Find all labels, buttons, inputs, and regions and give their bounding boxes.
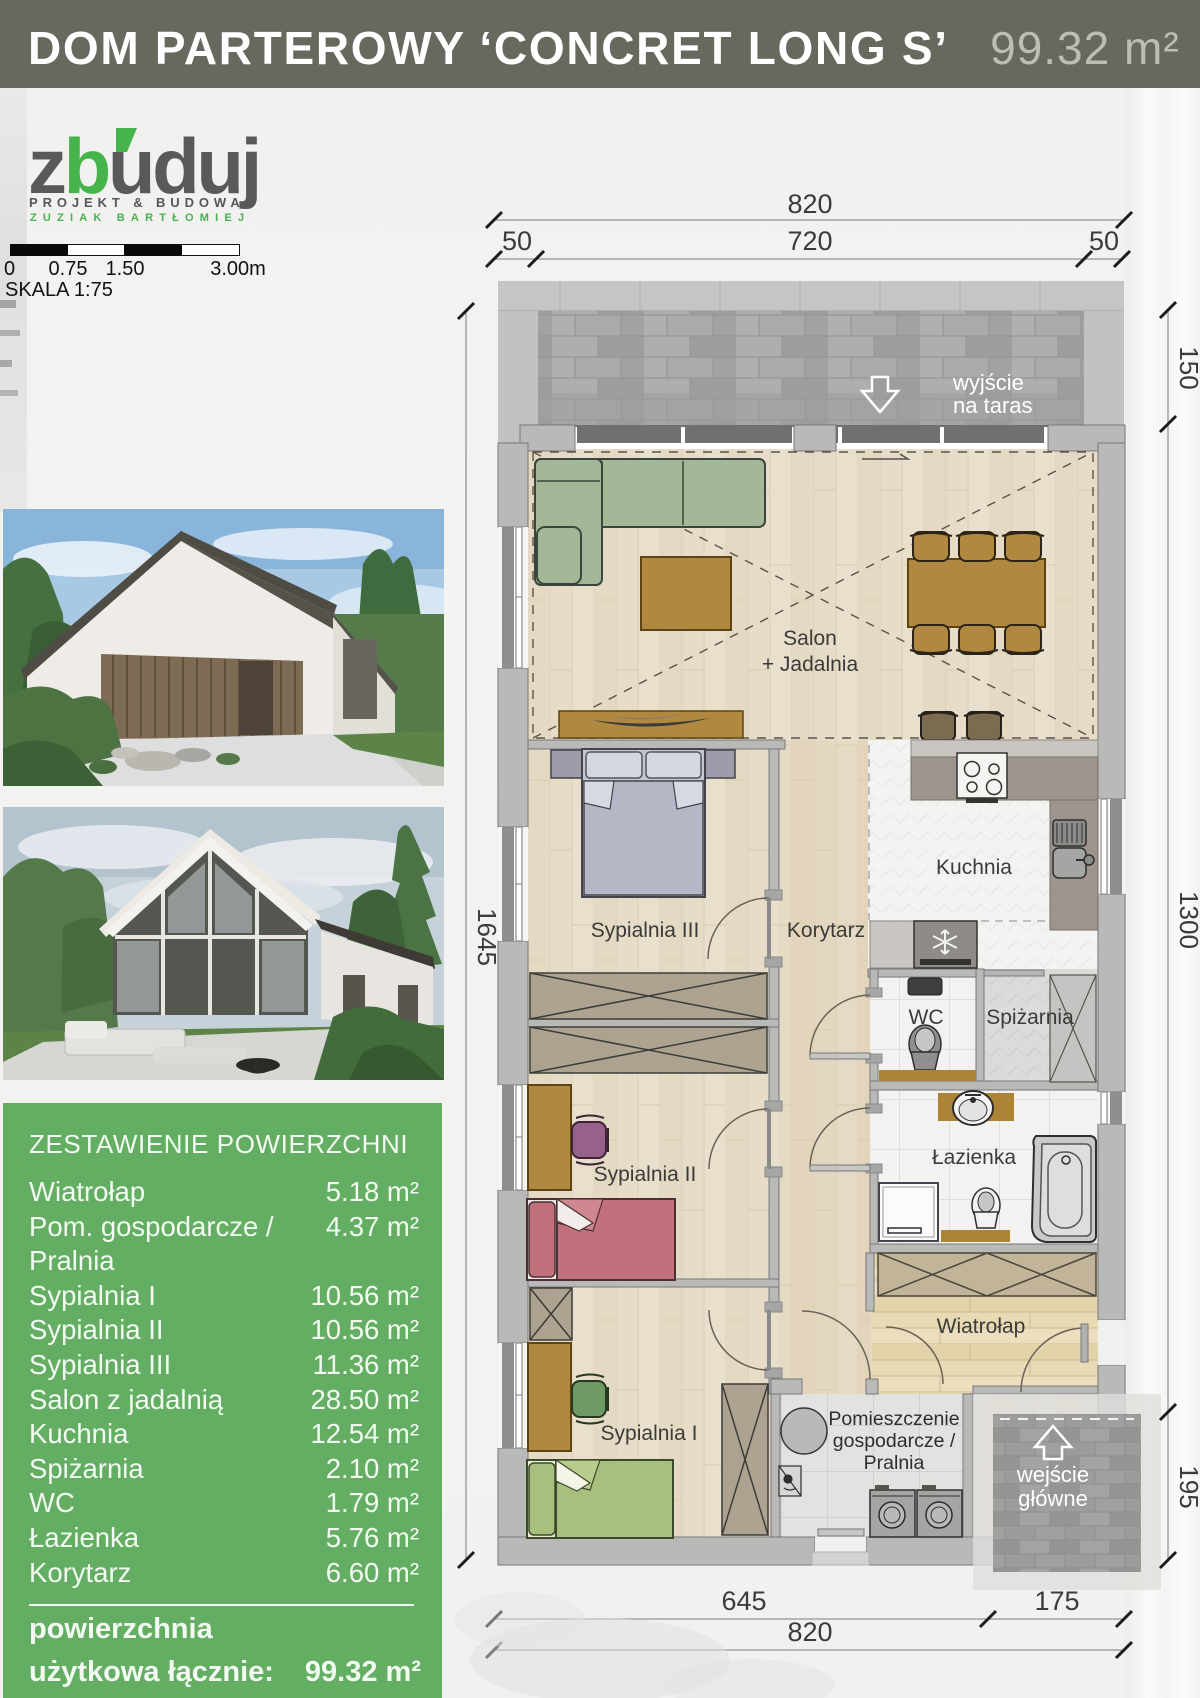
svg-text:na taras: na taras: [953, 393, 1033, 418]
svg-text:główne: główne: [1018, 1486, 1088, 1511]
svg-text:gospodarcze /: gospodarcze /: [833, 1430, 956, 1452]
svg-text:Korytarz: Korytarz: [787, 919, 865, 942]
svg-text:Pomieszczenie: Pomieszczenie: [828, 1408, 959, 1430]
svg-text:720: 720: [787, 226, 832, 256]
svg-text:175: 175: [1034, 1586, 1079, 1616]
svg-text:wejście: wejście: [1016, 1462, 1089, 1487]
svg-text:Łazienka: Łazienka: [932, 1146, 1016, 1169]
svg-text:195: 195: [1174, 1465, 1200, 1508]
svg-text:Salon: Salon: [783, 627, 837, 650]
svg-text:1300: 1300: [1174, 891, 1200, 949]
svg-text:150: 150: [1174, 346, 1200, 389]
svg-text:wyjście: wyjście: [952, 370, 1024, 395]
svg-text:Pralnia: Pralnia: [864, 1452, 925, 1474]
svg-text:820: 820: [787, 1617, 832, 1647]
svg-text:645: 645: [721, 1586, 766, 1616]
svg-text:50: 50: [1089, 226, 1119, 256]
svg-text:+ Jadalnia: + Jadalnia: [762, 653, 859, 676]
svg-text:1645: 1645: [472, 908, 502, 966]
svg-text:Spiżarnia: Spiżarnia: [986, 1006, 1074, 1029]
svg-text:Sypialnia II: Sypialnia II: [594, 1163, 697, 1186]
svg-text:820: 820: [787, 189, 832, 219]
svg-text:Kuchnia: Kuchnia: [936, 856, 1012, 879]
svg-text:Wiatrołap: Wiatrołap: [937, 1315, 1026, 1338]
svg-text:Sypialnia III: Sypialnia III: [591, 919, 700, 942]
svg-text:50: 50: [502, 226, 532, 256]
svg-text:Sypialnia I: Sypialnia I: [601, 1422, 698, 1445]
